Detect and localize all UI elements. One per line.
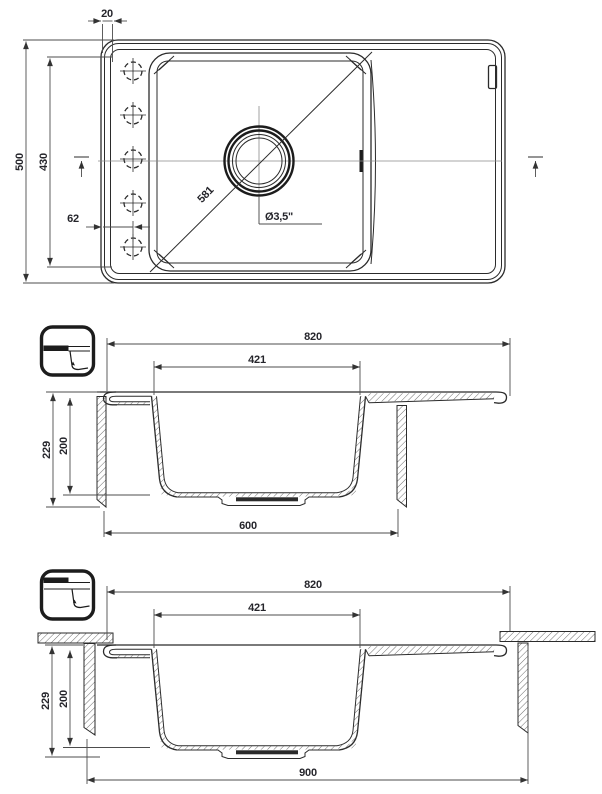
dim-overall-height: 229 xyxy=(41,441,53,459)
dim-overall-height: 229 xyxy=(40,692,52,710)
flush-mount-icon xyxy=(42,327,94,375)
cabinet-wall-right xyxy=(518,643,528,733)
dim-worktop-width: 900 xyxy=(299,767,317,779)
sink-cross-section xyxy=(97,392,507,506)
tap-hole xyxy=(120,190,146,216)
dim-drain-size: Ø3,5" xyxy=(265,211,293,223)
section-view-flush: 820 421 229 200 600 xyxy=(41,327,510,537)
flush-section-dimensions: 820 421 229 200 600 xyxy=(41,331,510,537)
bowl-outline xyxy=(149,53,376,271)
dim-bowl-depth: 200 xyxy=(58,690,70,708)
dim-bowl-top-width: 421 xyxy=(248,354,266,366)
worktop-right xyxy=(500,632,595,642)
tap-hole xyxy=(120,102,146,128)
sink-cross-section xyxy=(97,645,507,759)
undermount-icon xyxy=(42,571,94,619)
tap-hole xyxy=(120,146,146,172)
section-cut-markers xyxy=(74,157,543,177)
cabinet-wall-left xyxy=(84,644,95,736)
dim-tap-offset: 62 xyxy=(67,213,79,225)
dim-overall-width: 820 xyxy=(304,579,322,591)
dim-overall-width: 820 xyxy=(304,331,322,343)
dim-bowl-top-width: 421 xyxy=(248,602,266,614)
dim-bowl-diagonal: 581 xyxy=(195,184,216,205)
worktop-left xyxy=(38,633,113,643)
cabinet-wall-left xyxy=(97,397,106,508)
sink-outline xyxy=(101,40,505,283)
diagonal-dimension-line xyxy=(150,52,372,272)
section-view-undermount: 820 421 229 200 900 xyxy=(38,571,595,784)
dim-overall-depth: 500 xyxy=(14,153,26,171)
sink-technical-drawing: 500 430 20 62 581 Ø3,5" xyxy=(0,0,602,794)
top-view: 500 430 20 62 581 Ø3,5" xyxy=(14,8,543,283)
technical-drawing-page: 500 430 20 62 581 Ø3,5" xyxy=(0,0,602,794)
dim-inner-depth: 430 xyxy=(38,153,50,171)
dim-cabinet-width: 600 xyxy=(239,520,257,532)
cabinet-wall-right xyxy=(397,406,407,508)
dim-rim-width: 20 xyxy=(101,8,113,20)
tap-hole xyxy=(120,58,146,84)
dim-bowl-depth: 200 xyxy=(58,437,70,455)
